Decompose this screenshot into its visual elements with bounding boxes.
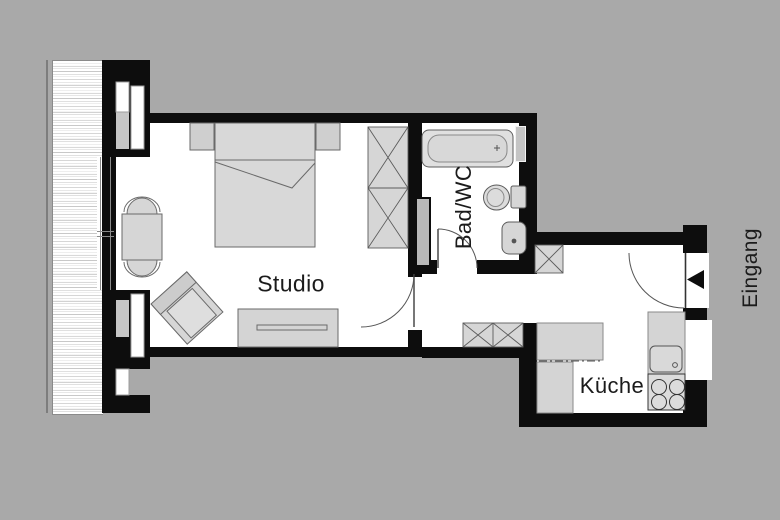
- wall-left-main: [102, 60, 116, 413]
- floor-plan-canvas: Studio Bad/WC Küche Eingang: [0, 0, 780, 520]
- wall-kitchen-bottom: [519, 413, 707, 427]
- wall-kitchen-stub: [519, 323, 537, 413]
- wall-entrance-upper: [683, 225, 707, 253]
- studio-door-opening: [408, 277, 422, 330]
- bath-label: Bad/WC: [451, 165, 477, 249]
- bath-door-opening: [437, 260, 477, 274]
- wall-bay-bottom-cap: [102, 395, 150, 413]
- bay-sill-top: [116, 112, 129, 149]
- studio-floor: [114, 123, 408, 347]
- studio-label: Studio: [257, 271, 325, 298]
- wall-hall-bottom: [422, 347, 537, 358]
- wall-entrance-lower: [683, 308, 707, 320]
- bay-niche-bottom: [116, 369, 129, 395]
- balcony-edge-line: [46, 60, 48, 413]
- bay-niche-top: [116, 82, 129, 112]
- kitchen-window: [685, 320, 712, 380]
- wall-hall-top: [537, 232, 690, 245]
- wall-studio-bottom: [148, 347, 423, 357]
- duct-shaft: [415, 197, 431, 267]
- bay-slot-top: [131, 86, 144, 149]
- entrance-opening: [683, 253, 709, 308]
- entrance-label: Eingang: [739, 228, 763, 308]
- bath-wall-inset: [515, 126, 526, 162]
- hall-passage: [519, 274, 537, 323]
- bay-sill-bottom: [116, 300, 129, 337]
- wall-top: [148, 113, 537, 123]
- hall-floor-left: [422, 274, 519, 347]
- bay-slot-bottom: [131, 294, 144, 357]
- kitchen-label: Küche: [580, 373, 644, 399]
- balcony-hatching: [52, 60, 103, 415]
